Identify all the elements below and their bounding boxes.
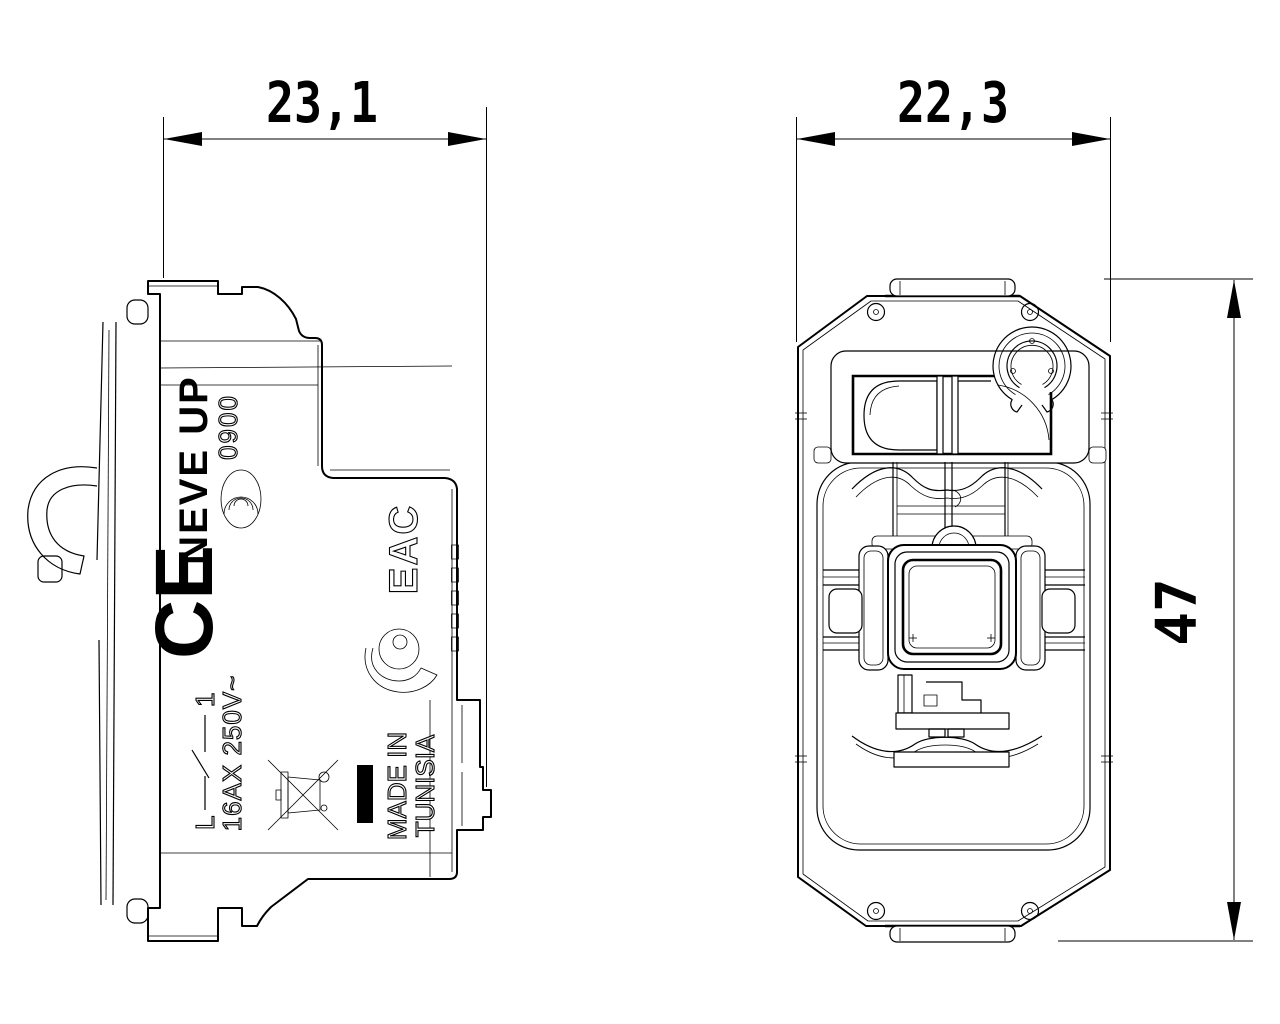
dim-value-front-width: 22,3 — [897, 71, 1009, 136]
certification-arcs-icon — [221, 470, 261, 528]
side-view: NEVE UP 0900 CE EAC L — [28, 281, 491, 941]
black-conformity-bar — [357, 765, 373, 823]
switch-contact-symbol: L 1 — [190, 693, 220, 830]
bottom-tab — [885, 926, 1020, 942]
rocker-seat — [888, 545, 1016, 669]
weee-crossed-bin-icon — [268, 760, 338, 830]
terminal-block — [814, 351, 1106, 463]
rating-label: 16AX 250V~ — [217, 675, 247, 832]
front-view — [795, 279, 1113, 942]
ce-mark-label: CE — [139, 545, 230, 659]
switch-terminal-l: L — [190, 816, 220, 830]
cert-number-label: 0900 — [213, 394, 243, 460]
top-tab — [885, 279, 1020, 296]
dim-value-side-width: 23,1 — [266, 71, 378, 136]
imq-quality-mark-icon — [365, 629, 437, 692]
eac-mark-label: EAC — [382, 504, 426, 594]
made-in-label-line1: MADE IN — [382, 732, 412, 840]
fixing-spring — [28, 300, 148, 923]
switch-terminal-1: 1 — [190, 693, 220, 707]
brand-label: NEVE UP — [172, 375, 216, 565]
switch-mechanism — [823, 462, 1085, 767]
device-markings: NEVE UP 0900 CE EAC L — [139, 375, 440, 840]
technical-drawing-page: 23,1 22,3 47 — [0, 0, 1280, 1024]
dim-value-front-height: 47 — [1145, 578, 1210, 645]
drawing-canvas: 23,1 22,3 47 — [0, 0, 1280, 1024]
made-in-label-line2: TUNISIA — [410, 734, 440, 837]
lower-mechanism — [852, 675, 1042, 767]
